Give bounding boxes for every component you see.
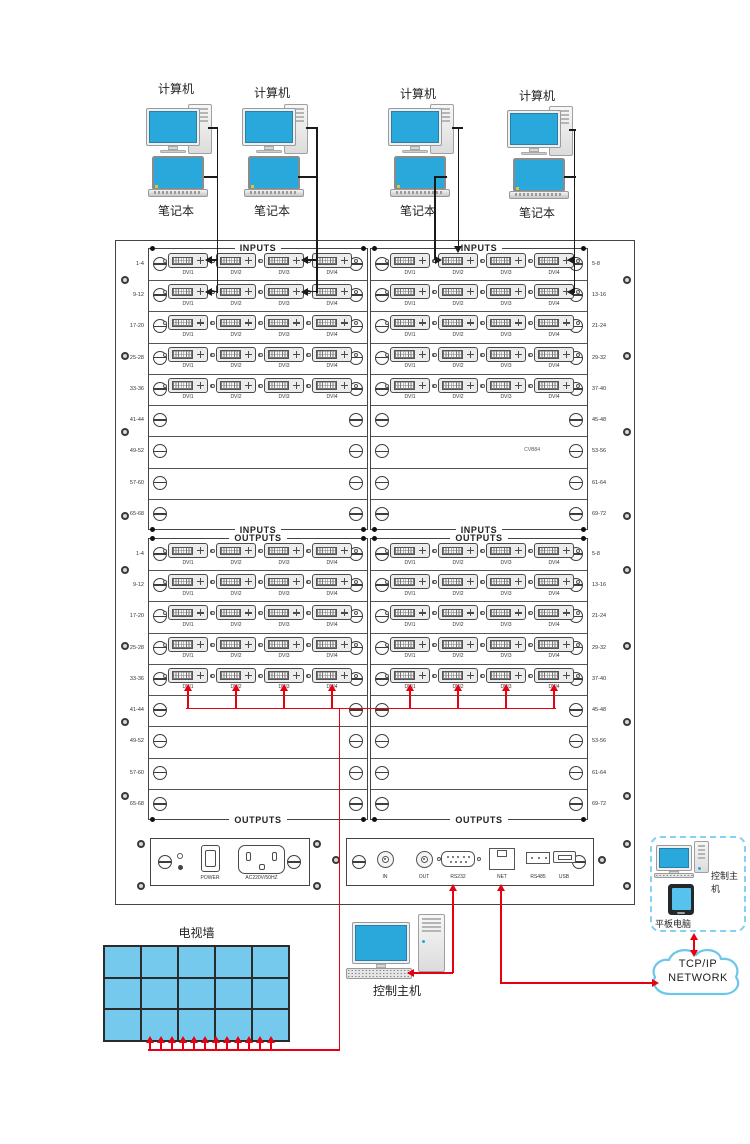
slot-range-label: 13-16: [592, 582, 616, 588]
slot-divider: [371, 570, 587, 571]
signal-line: [171, 1042, 173, 1050]
dvi-connector-detail: [433, 353, 437, 357]
monitor-stand-base: [256, 150, 282, 153]
dvi-connector-detail: [245, 319, 252, 326]
dvi-port-label: DVI1: [388, 270, 432, 276]
dvi-connector-detail: [163, 290, 167, 294]
dvi-connector-detail: [268, 381, 289, 390]
dvi-connector-detail: [467, 547, 474, 554]
dvi-connector-detail: [220, 257, 241, 266]
laptop-screen: [152, 156, 204, 190]
monitor-stand-base: [160, 150, 186, 153]
dvi-connector-detail: [354, 353, 358, 357]
dvi-connector-detail: [341, 288, 348, 295]
dvi-connector-detail: [293, 319, 300, 326]
slot-divider: [371, 280, 587, 281]
panel-title: INPUTS: [148, 242, 368, 254]
mount-hole: [150, 246, 155, 251]
signal-line: [160, 1042, 162, 1050]
laptop-label: 笔记本: [232, 202, 312, 219]
dvi-connector-detail: [220, 671, 241, 680]
dvi-port-label: DVI1: [166, 591, 210, 597]
dvi-connector-detail: [163, 643, 167, 647]
dvi-connector-icon: [486, 574, 526, 589]
dvi-connector-detail: [576, 643, 580, 647]
tv-wall-cell: [253, 947, 288, 977]
power-switch-label: POWER: [190, 875, 230, 881]
dvi-connector-icon: [390, 543, 430, 558]
cloud-label-line2: NETWORK: [646, 972, 750, 984]
dvi-connector-detail: [515, 609, 522, 616]
dvi-port-label: DVI3: [262, 394, 306, 400]
dvi-connector-detail: [490, 350, 511, 359]
slot-divider: [371, 758, 587, 759]
dvi-connector-icon: [486, 543, 526, 558]
dvi-connector-detail: [515, 672, 522, 679]
slot-divider: [149, 499, 367, 500]
dvi-connector-detail: [316, 350, 337, 359]
screw-icon: [349, 766, 363, 780]
monitor-screen: [149, 111, 197, 143]
monitor-screen: [659, 848, 689, 868]
dvi-port-label: DVI3: [484, 270, 528, 276]
dvi-connector-detail: [172, 671, 193, 680]
dvi-port-label: DVI2: [436, 363, 480, 369]
laptop-keys: [515, 193, 563, 196]
slot-divider: [149, 633, 367, 634]
slot-range-label: 33-36: [120, 676, 144, 682]
slot-divider: [371, 343, 587, 344]
dvi-connector-detail: [538, 578, 559, 587]
dvi-connector-detail: [419, 288, 426, 295]
dvi-connector-detail: [515, 641, 522, 648]
dvi-connector-icon: [438, 668, 478, 683]
screw-icon: [375, 703, 389, 717]
dvi-connector-icon: [168, 605, 208, 620]
dvi-port-label: DVI4: [310, 301, 354, 307]
dvi-connector-detail: [172, 609, 193, 618]
chassis-screw-icon: [598, 856, 606, 864]
dvi-connector-detail: [316, 547, 337, 556]
dvi-connector-detail: [576, 549, 580, 553]
dvi-connector-detail: [481, 580, 485, 584]
dvi-connector-detail: [259, 290, 263, 294]
dvi-connector-detail: [293, 288, 300, 295]
dvi-connector-detail: [538, 547, 559, 556]
rs485-pin: [545, 857, 547, 859]
dvi-port-label: DVI3: [262, 560, 306, 566]
rs232-screw: [477, 857, 481, 861]
dvi-connector-detail: [245, 257, 252, 264]
dvi-connector-detail: [481, 353, 485, 357]
cable-line: [307, 291, 316, 293]
dvi-connector-detail: [259, 674, 263, 678]
rs232-pin: [450, 861, 452, 863]
dvi-connector-detail: [515, 547, 522, 554]
tower-vent: [422, 930, 441, 932]
dvi-connector-icon: [168, 253, 208, 268]
dvi-connector-detail: [515, 288, 522, 295]
dvi-connector-detail: [442, 578, 463, 587]
dvi-connector-icon: [216, 637, 256, 652]
panel-title-text: OUTPUTS: [450, 533, 507, 543]
net-port-icon: [497, 850, 507, 857]
dvi-connector-icon: [312, 574, 352, 589]
rs232-pin: [468, 856, 470, 858]
tower-led: [422, 940, 425, 943]
dvi-connector-icon: [438, 315, 478, 330]
dvi-connector-detail: [442, 547, 463, 556]
dvi-connector-detail: [467, 641, 474, 648]
dvi-connector-icon: [438, 284, 478, 299]
dvi-connector-detail: [197, 672, 204, 679]
chassis-screw-icon: [121, 352, 129, 360]
dvi-connector-detail: [211, 549, 215, 553]
slot-divider: [371, 405, 587, 406]
dvi-connector-detail: [433, 384, 437, 388]
rs232-pin: [455, 861, 457, 863]
chassis-screw-icon: [623, 276, 631, 284]
dvi-connector-icon: [534, 378, 574, 393]
dvi-connector-detail: [211, 643, 215, 647]
panel-title: OUTPUTS: [148, 814, 368, 826]
dvi-connector-detail: [433, 674, 437, 678]
dvi-connector-detail: [529, 549, 533, 553]
dvi-connector-detail: [245, 672, 252, 679]
signal-line: [553, 690, 555, 709]
bnc-connector-icon: [423, 858, 425, 860]
dvi-connector-detail: [259, 259, 263, 263]
screw-icon: [569, 703, 583, 717]
dvi-connector-detail: [576, 353, 580, 357]
tower-vent: [422, 922, 441, 924]
rs232-port-icon: [441, 851, 475, 867]
dvi-port-label: DVI4: [310, 332, 354, 338]
chassis-screw-icon: [137, 882, 145, 890]
dvi-connector-icon: [438, 637, 478, 652]
slot-range-label: 1-4: [120, 261, 144, 267]
dvi-connector-detail: [220, 640, 241, 649]
dvi-connector-detail: [433, 549, 437, 553]
dvi-connector-icon: [534, 574, 574, 589]
mount-hole: [361, 817, 366, 822]
cable-line: [458, 127, 460, 246]
dvi-port-label: DVI1: [388, 622, 432, 628]
dvi-connector-detail: [442, 609, 463, 618]
slot-range-label: 57-60: [120, 770, 144, 776]
dvi-port-label: DVI2: [436, 301, 480, 307]
slot-range-label: 21-24: [592, 323, 616, 329]
signal-line: [149, 1042, 151, 1050]
screw-icon: [375, 413, 389, 427]
chassis-screw-icon: [121, 428, 129, 436]
dvi-port-label: DVI1: [166, 622, 210, 628]
dvi-connector-detail: [172, 350, 193, 359]
dvi-connector-detail: [245, 578, 252, 585]
dvi-connector-detail: [316, 671, 337, 680]
dvi-connector-icon: [534, 543, 574, 558]
dvi-connector-icon: [312, 668, 352, 683]
dvi-connector-icon: [216, 315, 256, 330]
dvi-connector-detail: [163, 384, 167, 388]
dvi-connector-detail: [354, 290, 358, 294]
dvi-connector-detail: [576, 290, 580, 294]
dvi-connector-detail: [268, 609, 289, 618]
dvi-connector-detail: [354, 384, 358, 388]
slot-range-label: 33-36: [120, 386, 144, 392]
dvi-connector-detail: [245, 288, 252, 295]
dvi-connector-detail: [268, 257, 289, 266]
keyboard-icon: [654, 873, 694, 878]
laptop-screen: [248, 156, 300, 190]
dvi-connector-detail: [419, 382, 426, 389]
dvi-connector-icon: [390, 668, 430, 683]
dvi-connector-detail: [172, 257, 193, 266]
dvi-connector-detail: [563, 578, 570, 585]
signal-line: [187, 690, 189, 709]
mount-hole: [150, 536, 155, 541]
port-label: IN: [365, 874, 405, 880]
chassis-screw-icon: [623, 642, 631, 650]
dvi-connector-detail: [490, 578, 511, 587]
slot-divider: [371, 436, 587, 437]
dvi-port-label: DVI4: [532, 394, 576, 400]
dvi-connector-detail: [515, 382, 522, 389]
computer-label: 计算机: [136, 80, 216, 97]
dvi-connector-icon: [438, 347, 478, 362]
dvi-connector-detail: [563, 319, 570, 326]
dvi-connector-icon: [264, 253, 304, 268]
dvi-connector-detail: [245, 351, 252, 358]
dvi-port-label: DVI2: [214, 394, 258, 400]
dvi-connector-detail: [268, 319, 289, 328]
dvi-port-label: DVI4: [532, 653, 576, 659]
signal-arrow-icon: [301, 288, 308, 296]
dvi-connector-detail: [419, 257, 426, 264]
dvi-connector-detail: [385, 290, 389, 294]
slot-divider: [149, 343, 367, 344]
slot-divider: [149, 726, 367, 727]
dvi-connector-detail: [172, 547, 193, 556]
dvi-port-label: DVI1: [166, 270, 210, 276]
laptop-keys: [154, 191, 202, 194]
dvi-connector-icon: [390, 253, 430, 268]
dvi-connector-detail: [490, 381, 511, 390]
dvi-connector-detail: [197, 319, 204, 326]
signal-line: [331, 690, 333, 709]
rs232-pin: [463, 856, 465, 858]
dvi-port-label: DVI3: [484, 591, 528, 597]
slot-range-label: 41-44: [120, 707, 144, 713]
cloud-label-line1: TCP/IP: [646, 958, 750, 970]
dvi-connector-icon: [312, 378, 352, 393]
screw-icon: [153, 507, 167, 521]
tablet-screen: [672, 888, 691, 910]
signal-arrow-icon: [567, 288, 574, 296]
signal-arrow-icon: [205, 288, 212, 296]
dvi-connector-detail: [197, 351, 204, 358]
dvi-port-label: DVI1: [388, 591, 432, 597]
port-label: NET: [482, 874, 522, 880]
dvi-connector-detail: [442, 319, 463, 328]
dvi-connector-icon: [312, 637, 352, 652]
mount-hole: [581, 817, 586, 822]
dvi-connector-detail: [433, 643, 437, 647]
dvi-connector-detail: [467, 382, 474, 389]
signal-line: [270, 1042, 272, 1050]
slot-range-label: 57-60: [120, 480, 144, 486]
dvi-connector-detail: [385, 384, 389, 388]
usb-port-icon: [558, 855, 572, 860]
laptop-keys: [250, 191, 298, 194]
cable-line: [307, 259, 316, 261]
slot-range-label: 29-32: [592, 645, 616, 651]
dvi-connector-detail: [259, 643, 263, 647]
slot-range-label: 1-4: [120, 551, 144, 557]
dvi-port-label: DVI3: [262, 622, 306, 628]
bnc-connector-icon: [384, 858, 386, 860]
dvi-port-label: DVI1: [166, 301, 210, 307]
dvi-connector-detail: [576, 259, 580, 263]
cable-line: [298, 176, 318, 178]
dvi-connector-detail: [197, 547, 204, 554]
signal-line: [283, 690, 285, 709]
dvi-connector-icon: [390, 378, 430, 393]
chassis-screw-icon: [623, 882, 631, 890]
dvi-connector-detail: [268, 350, 289, 359]
dvi-connector-detail: [172, 288, 193, 297]
dvi-connector-detail: [245, 382, 252, 389]
dvi-port-label: DVI4: [532, 591, 576, 597]
dvi-connector-icon: [390, 347, 430, 362]
dvi-connector-detail: [481, 643, 485, 647]
laptop-screen: [394, 156, 446, 190]
slot-range-label: 13-16: [592, 292, 616, 298]
dvi-connector-icon: [438, 253, 478, 268]
signal-arrow-icon: [690, 950, 698, 957]
dvi-port-label: DVI2: [436, 622, 480, 628]
signal-arrow-icon: [567, 256, 574, 264]
tower-led: [698, 867, 701, 870]
dvi-connector-detail: [354, 259, 358, 263]
slot-divider: [149, 601, 367, 602]
dvi-connector-detail: [538, 671, 559, 680]
led-indicator-icon: [177, 853, 183, 859]
tv-wall-cell: [142, 979, 177, 1009]
dvi-connector-detail: [341, 319, 348, 326]
dvi-connector-detail: [197, 609, 204, 616]
power-switch-icon: [205, 850, 216, 867]
dvi-connector-detail: [442, 257, 463, 266]
monitor-screen: [510, 113, 558, 145]
dvi-connector-detail: [293, 641, 300, 648]
dvi-connector-detail: [316, 257, 337, 266]
signal-line: [339, 708, 341, 1050]
dvi-connector-detail: [490, 671, 511, 680]
slot-range-label: 41-44: [120, 417, 144, 423]
dvi-port-label: DVI1: [388, 332, 432, 338]
dvi-connector-detail: [293, 351, 300, 358]
dvi-connector-detail: [268, 640, 289, 649]
dvi-connector-icon: [312, 315, 352, 330]
dvi-connector-detail: [268, 288, 289, 297]
tv-wall-cell: [216, 947, 251, 977]
dvi-connector-detail: [433, 290, 437, 294]
screw-icon: [349, 797, 363, 811]
dvi-connector-detail: [316, 640, 337, 649]
dvi-connector-detail: [563, 672, 570, 679]
dvi-port-label: DVI2: [214, 622, 258, 628]
dvi-port-label: DVI1: [166, 363, 210, 369]
dvi-connector-detail: [442, 671, 463, 680]
dvi-connector-icon: [264, 378, 304, 393]
dvi-connector-icon: [486, 605, 526, 620]
dvi-connector-detail: [172, 640, 193, 649]
dvi-connector-detail: [316, 288, 337, 297]
led-indicator-icon: [178, 865, 183, 870]
rs485-pin: [538, 857, 540, 859]
dvi-connector-detail: [394, 288, 415, 297]
chassis-screw-icon: [623, 840, 631, 848]
laptop-label: 笔记本: [497, 204, 577, 221]
slot-range-label: 9-12: [120, 292, 144, 298]
mount-hole: [581, 536, 586, 541]
dvi-connector-detail: [354, 643, 358, 647]
dvi-connector-icon: [216, 668, 256, 683]
dvi-connector-detail: [490, 319, 511, 328]
dvi-connector-detail: [197, 257, 204, 264]
dvi-port-label: DVI2: [436, 270, 480, 276]
dvi-connector-detail: [419, 609, 426, 616]
signal-line: [409, 690, 411, 709]
slot-divider: [371, 664, 587, 665]
tower-vent: [698, 857, 705, 859]
panel-watermark: CVB84: [480, 447, 540, 453]
dvi-port-label: DVI3: [484, 622, 528, 628]
dvi-connector-detail: [490, 288, 511, 297]
dvi-connector-detail: [490, 257, 511, 266]
laptop-led: [251, 185, 254, 188]
dvi-port-label: DVI2: [214, 332, 258, 338]
signal-line: [248, 1042, 250, 1050]
dvi-connector-icon: [216, 378, 256, 393]
tv-wall-cell: [142, 947, 177, 977]
dvi-connector-icon: [168, 347, 208, 362]
slot-divider: [149, 405, 367, 406]
av-matrix-wiring-diagram: 电视墙 控制主机 控制主机 平板电脑 TCP/IP NETWORK INPUTS…: [0, 0, 750, 1144]
dvi-connector-icon: [168, 668, 208, 683]
cable-line: [574, 129, 576, 293]
dvi-port-label: DVI1: [166, 653, 210, 659]
dvi-port-label: DVI3: [484, 653, 528, 659]
dvi-connector-icon: [390, 315, 430, 330]
dvi-connector-icon: [486, 253, 526, 268]
panel-title: INPUTS: [370, 242, 588, 254]
dvi-connector-icon: [216, 253, 256, 268]
dvi-connector-detail: [490, 640, 511, 649]
screw-icon: [349, 703, 363, 717]
dvi-connector-detail: [563, 351, 570, 358]
cable-line: [217, 127, 219, 293]
dvi-port-label: DVI2: [214, 560, 258, 566]
dvi-connector-detail: [442, 381, 463, 390]
dvi-connector-icon: [216, 574, 256, 589]
dvi-connector-detail: [419, 672, 426, 679]
dvi-connector-detail: [354, 674, 358, 678]
dvi-connector-detail: [481, 384, 485, 388]
dvi-port-label: DVI1: [388, 560, 432, 566]
dvi-port-label: DVI4: [532, 270, 576, 276]
